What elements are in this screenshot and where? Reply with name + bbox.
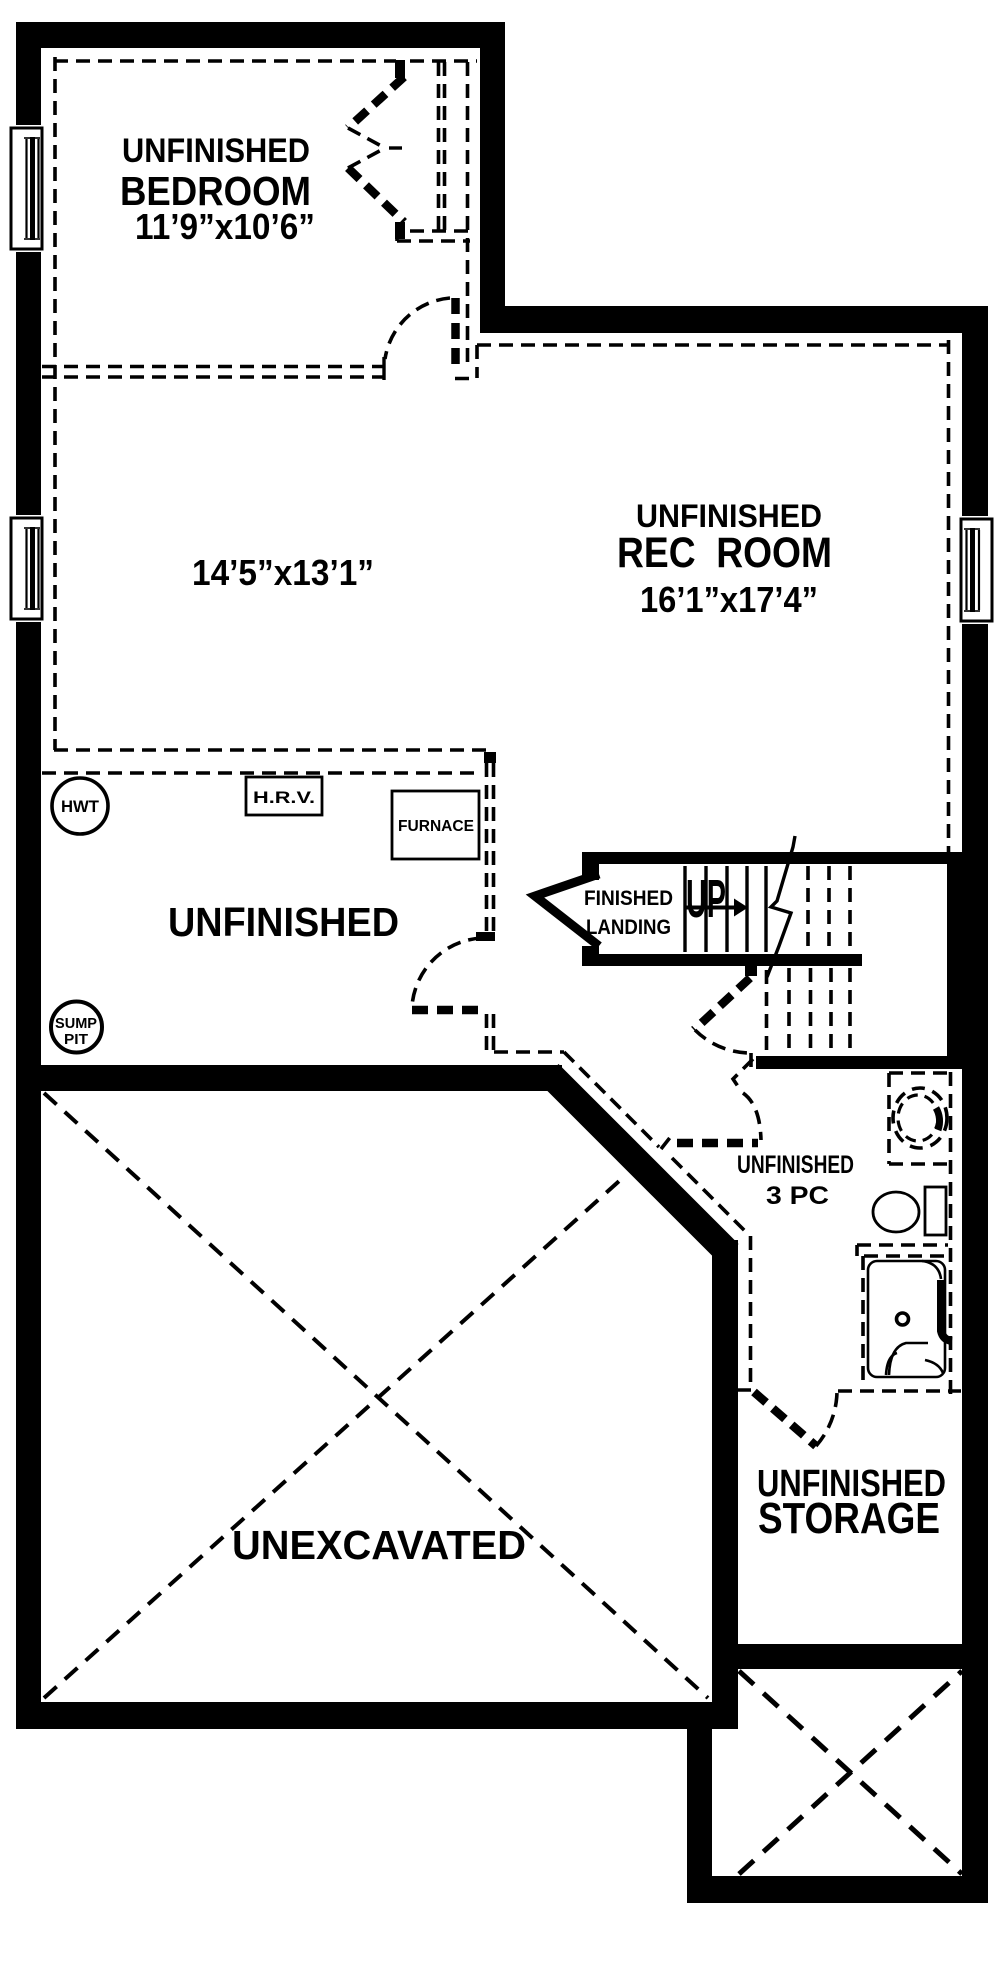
svg-text:REC ROOM: REC ROOM	[617, 529, 832, 577]
svg-text:11’9”x10’6”: 11’9”x10’6”	[135, 206, 315, 247]
svg-text:14’5”x13’1”: 14’5”x13’1”	[192, 552, 374, 593]
svg-text:UNFINISHED: UNFINISHED	[168, 899, 399, 945]
svg-text:PIT: PIT	[64, 1031, 88, 1048]
svg-text:16’1”x17’4”: 16’1”x17’4”	[640, 579, 818, 620]
svg-text:SUMP: SUMP	[55, 1015, 97, 1032]
svg-text:UNFINISHED: UNFINISHED	[737, 1151, 854, 1179]
svg-text:STORAGE: STORAGE	[758, 1494, 940, 1543]
svg-text:LANDING: LANDING	[586, 916, 671, 939]
svg-text:FINISHED: FINISHED	[584, 887, 673, 910]
svg-text:HWT: HWT	[61, 797, 100, 816]
svg-text:UP: UP	[686, 869, 726, 929]
svg-text:FURNACE: FURNACE	[398, 818, 474, 835]
svg-text:H.R.V.: H.R.V.	[253, 788, 315, 807]
svg-text:3 PC: 3 PC	[766, 1182, 829, 1210]
svg-text:UNFINISHED: UNFINISHED	[122, 132, 310, 170]
svg-text:UNEXCAVATED: UNEXCAVATED	[232, 1522, 526, 1568]
